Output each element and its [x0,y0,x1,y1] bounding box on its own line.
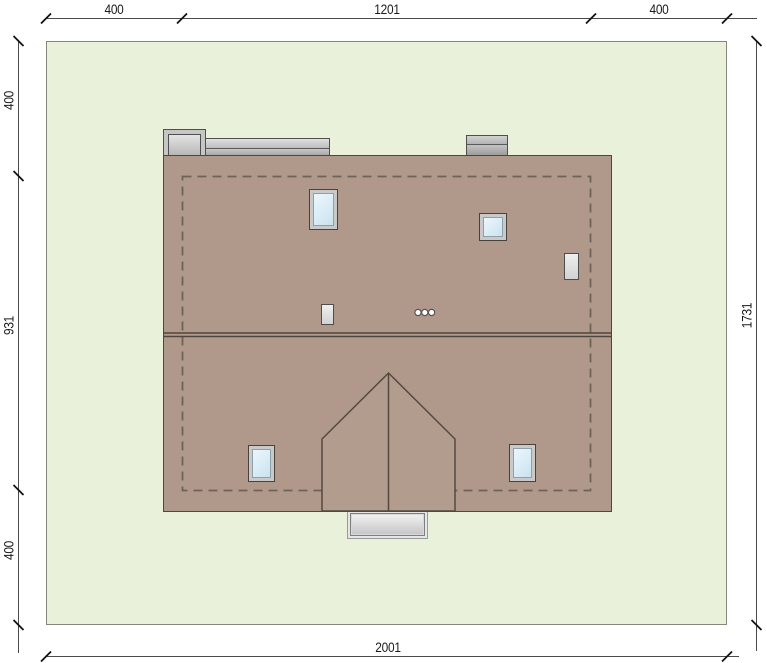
chimney-left-cap [168,134,201,156]
skylight-3-glass [252,449,271,478]
roof-vent-right [564,253,579,280]
entrance-porch-floor [352,515,423,534]
dim-label-left-middle: 931 [2,299,17,352]
dim-label-top-right: 400 [633,2,686,17]
skylight-1-glass [313,193,334,226]
roof-vent-center [321,304,334,325]
skylight-2 [479,213,507,241]
chimney-right-top [467,136,507,145]
entrance-porch-step [350,513,425,536]
skylight-4-glass [513,448,532,478]
chimney-left [163,129,206,157]
roof-edge-wall-top [206,139,329,149]
dim-label-right: 1731 [740,289,755,342]
skylight-3 [248,445,275,482]
skylight-2-glass [483,217,503,237]
roof-plan-drawing: 400 1201 400 400 931 400 1731 2001 [0,0,767,663]
skylight-1 [309,189,338,230]
roof [163,155,612,512]
dim-label-top-middle: 1201 [361,2,414,17]
dim-label-left-bottom: 400 [2,524,17,577]
skylight-4 [509,444,536,482]
chimney-right [466,135,508,156]
chimney-right-bottom [467,145,507,155]
dim-label-left-top: 400 [2,74,17,127]
entrance-porch [347,510,428,539]
dim-label-top-left: 400 [88,2,141,17]
dim-label-bottom: 2001 [362,640,415,655]
roof-edge-wall [205,138,330,156]
